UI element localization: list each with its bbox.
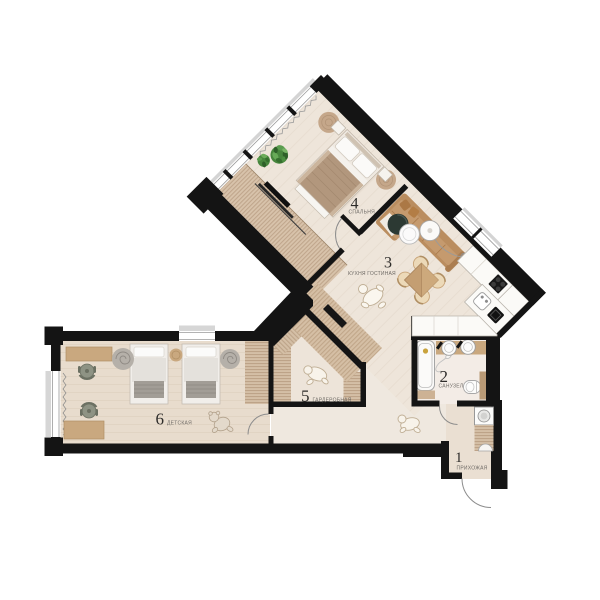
svg-text:ГАРДЕРОБНАЯ: ГАРДЕРОБНАЯ — [313, 398, 352, 404]
svg-text:1: 1 — [455, 450, 463, 466]
svg-text:КУХНЯ ГОСТИНАЯ: КУХНЯ ГОСТИНАЯ — [348, 271, 396, 277]
svg-text:ПРИХОЖАЯ: ПРИХОЖАЯ — [457, 466, 488, 472]
svg-text:5: 5 — [301, 387, 310, 406]
svg-text:САНУЗЕЛ: САНУЗЕЛ — [439, 384, 464, 390]
svg-text:6: 6 — [156, 410, 165, 429]
svg-text:СПАЛЬНЯ: СПАЛЬНЯ — [349, 210, 376, 216]
svg-text:3: 3 — [384, 255, 392, 272]
svg-text:ДЕТСКАЯ: ДЕТСКАЯ — [167, 421, 192, 427]
